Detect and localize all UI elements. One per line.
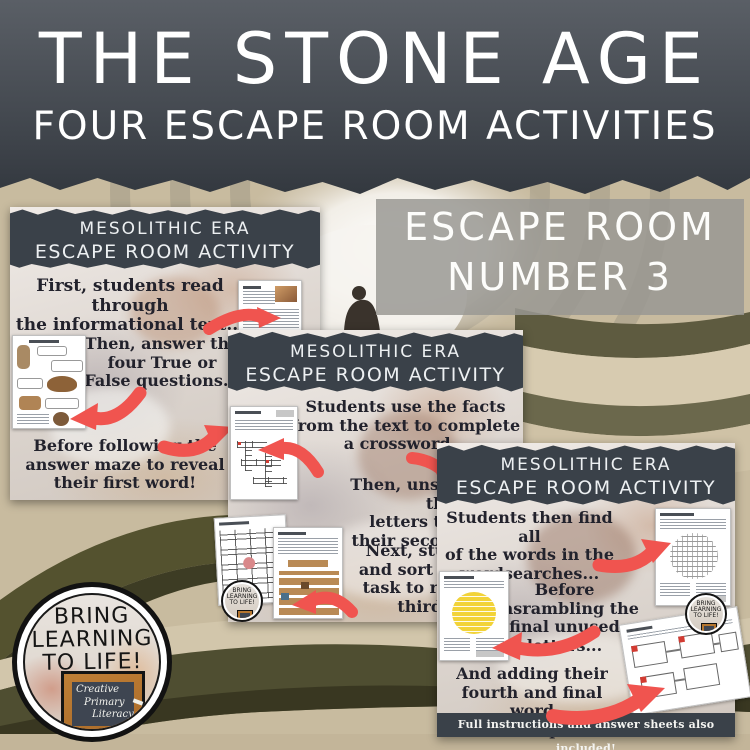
card3-header-line1: MESOLITHIC ERA xyxy=(437,455,735,475)
page-title: THE STONE AGE xyxy=(0,18,750,100)
badge-line1: ESCAPE ROOM xyxy=(376,205,744,249)
page-subtitle: FOUR ESCAPE ROOM ACTIVITIES xyxy=(0,104,750,149)
chalkboard-text: Creative Primary Literacy xyxy=(76,684,134,722)
chalkboard-icon xyxy=(237,610,253,618)
red-arrow-icon xyxy=(68,385,148,431)
card1-header-line1: MESOLITHIC ERA xyxy=(10,219,320,239)
card2-header-line1: MESOLITHIC ERA xyxy=(228,342,523,362)
red-arrow-icon xyxy=(288,588,358,622)
preview-card-3: MESOLITHIC ERA ESCAPE ROOM ACTIVITY Stud… xyxy=(437,443,735,737)
brand-logo-photo: BRINGLEARNINGTO LIFE! Creative Primary L… xyxy=(23,593,161,731)
title-banner: THE STONE AGE FOUR ESCAPE ROOM ACTIVITIE… xyxy=(0,0,750,200)
chalkboard-icon xyxy=(701,623,717,631)
caveman-cartoon xyxy=(19,396,41,410)
mini-brand-logo: BRINGLEARNINGTO LIFE! xyxy=(221,580,263,622)
escape-room-number-badge: ESCAPE ROOM NUMBER 3 xyxy=(376,199,744,315)
red-arrow-icon xyxy=(593,533,675,573)
badge-line2: NUMBER 3 xyxy=(376,255,744,299)
chalk-icon xyxy=(133,698,144,705)
brand-logo-text: BRINGLEARNINGTO LIFE! xyxy=(24,604,159,676)
product-cover: THE STONE AGE FOUR ESCAPE ROOM ACTIVITIE… xyxy=(0,0,750,750)
card1-header: MESOLITHIC ERA ESCAPE ROOM ACTIVITY xyxy=(10,207,320,271)
card2-header-line2: ESCAPE ROOM ACTIVITY xyxy=(228,364,523,386)
caveman-cartoon xyxy=(17,345,30,369)
card2-header: MESOLITHIC ERA ESCAPE ROOM ACTIVITY xyxy=(228,330,523,394)
card3-header-line2: ESCAPE ROOM ACTIVITY xyxy=(437,477,735,499)
card1-header-line2: ESCAPE ROOM ACTIVITY xyxy=(10,241,320,263)
animal-cartoon xyxy=(53,412,69,426)
red-arrow-icon xyxy=(486,620,602,660)
card3-header: MESOLITHIC ERA ESCAPE ROOM ACTIVITY xyxy=(437,443,735,507)
red-arrow-icon xyxy=(256,436,324,480)
brand-logo: BRINGLEARNINGTO LIFE! Creative Primary L… xyxy=(12,582,172,742)
card1-step2-text: Then, answer thefour True orFalse questi… xyxy=(82,335,242,391)
chalkboard-icon: Creative Primary Literacy xyxy=(61,671,145,731)
red-arrow-icon xyxy=(543,678,675,724)
mini-brand-logo: BRINGLEARNINGTO LIFE! xyxy=(685,593,727,635)
red-arrow-icon xyxy=(156,417,238,459)
